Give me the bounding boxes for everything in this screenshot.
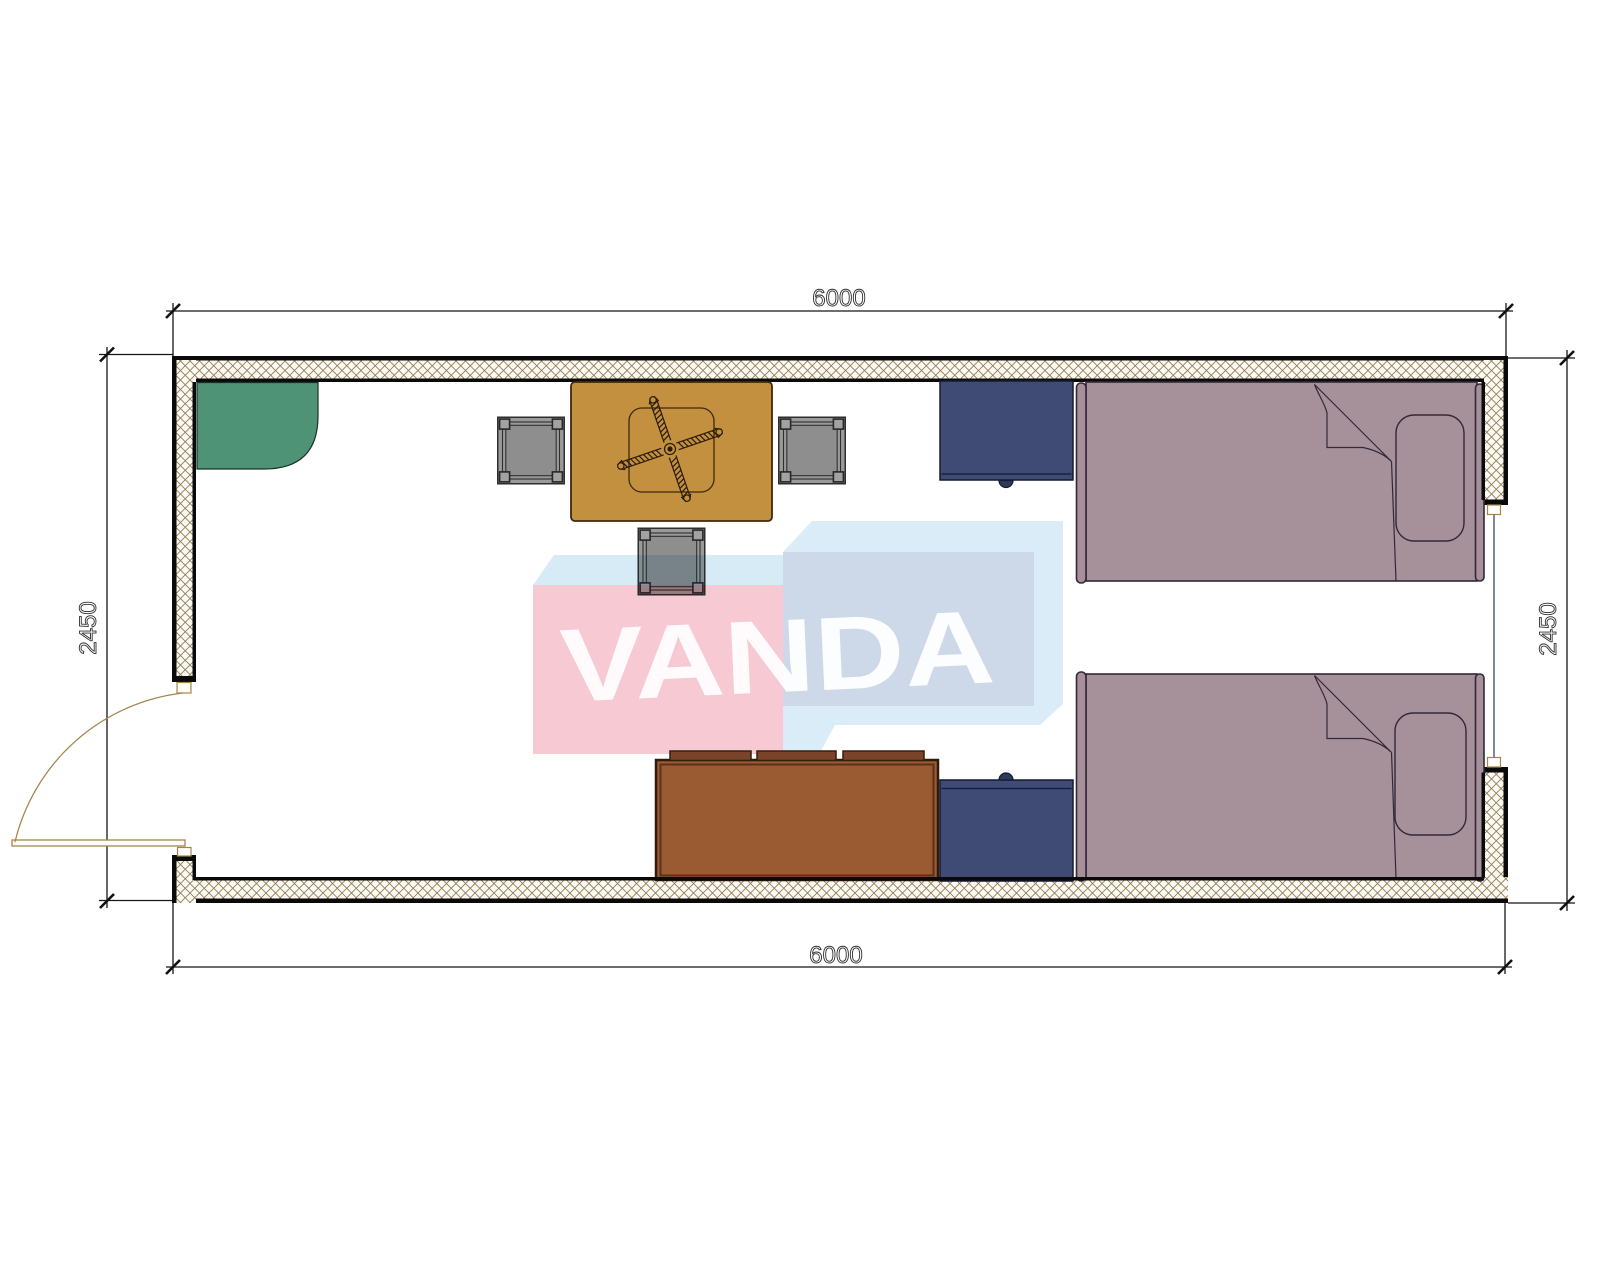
- svg-text:VANDA: VANDA: [558, 589, 997, 724]
- svg-text:2450: 2450: [75, 601, 102, 654]
- svg-text:2450: 2450: [1535, 602, 1562, 655]
- svg-text:6000: 6000: [812, 285, 865, 312]
- svg-text:6000: 6000: [809, 942, 862, 969]
